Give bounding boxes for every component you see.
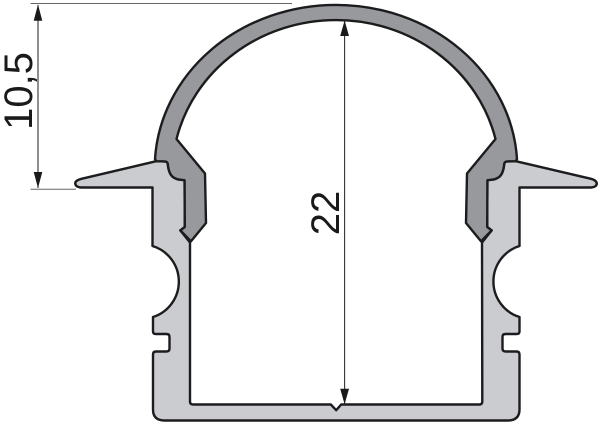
svg-text:22: 22 — [304, 191, 348, 236]
svg-text:10,5: 10,5 — [0, 52, 41, 130]
